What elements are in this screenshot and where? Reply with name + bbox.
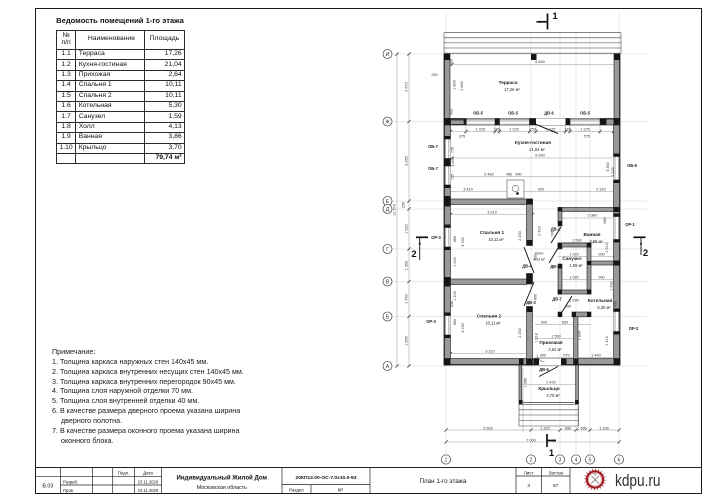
svg-text:kdpu.ru: kdpu.ru (615, 472, 661, 490)
svg-text:2: 2 (530, 457, 533, 463)
svg-text:5,30 м²: 5,30 м² (597, 305, 611, 310)
svg-text:3,70 м²: 3,70 м² (546, 393, 560, 398)
svg-text:1 430: 1 430 (610, 281, 614, 291)
svg-text:3 210: 3 210 (485, 350, 495, 354)
svg-text:2: 2 (643, 248, 648, 259)
svg-text:В: В (386, 279, 390, 285)
svg-text:2 670: 2 670 (405, 82, 409, 92)
svg-text:1 510: 1 510 (605, 243, 609, 253)
svg-text:КР: КР (338, 488, 344, 493)
svg-text:3 150: 3 150 (461, 237, 465, 247)
svg-text:5: 5 (589, 457, 592, 463)
svg-text:10,11 м²: 10,11 м² (488, 237, 504, 242)
svg-text:3 265: 3 265 (405, 156, 409, 166)
svg-text:2 480: 2 480 (484, 173, 494, 177)
svg-text:1 225: 1 225 (580, 128, 590, 132)
svg-text:Раздел: Раздел (289, 488, 304, 493)
svg-text:6: 6 (618, 457, 621, 463)
svg-text:3 350: 3 350 (606, 162, 610, 172)
svg-text:565: 565 (580, 426, 586, 430)
svg-text:Лист: Лист (524, 470, 534, 475)
svg-text:1,59 м²: 1,59 м² (569, 263, 583, 268)
svg-text:450: 450 (506, 173, 512, 177)
svg-text:И: И (386, 52, 390, 58)
svg-text:ДВ-2: ДВ-2 (551, 227, 561, 232)
svg-text:ДВ-7: ДВ-7 (552, 297, 562, 302)
svg-text:250: 250 (431, 73, 437, 77)
svg-text:Санузел: Санузел (562, 256, 581, 261)
svg-text:900: 900 (598, 276, 604, 280)
svg-text:3,86 м²: 3,86 м² (589, 239, 603, 244)
svg-text:3 210: 3 210 (487, 211, 497, 215)
svg-text:2 250: 2 250 (518, 328, 522, 338)
svg-text:6 640: 6 640 (535, 60, 545, 64)
svg-text:Индивидуальный Жилой Дом: Индивидуальный Жилой Дом (177, 475, 268, 482)
svg-text:Подл.: Подл. (118, 470, 130, 475)
svg-text:430: 430 (450, 301, 454, 307)
svg-text:3 000: 3 000 (451, 157, 455, 167)
svg-text:Московская область: Московская область (197, 485, 247, 491)
svg-text:400: 400 (450, 59, 454, 65)
svg-text:1 225: 1 225 (509, 128, 519, 132)
svg-text:ОР-1: ОР-1 (625, 222, 635, 227)
svg-text:1 165: 1 165 (599, 426, 609, 430)
svg-text:1 800: 1 800 (453, 80, 457, 90)
svg-text:900: 900 (541, 321, 547, 325)
svg-text:1 440: 1 440 (591, 354, 601, 358)
svg-text:ДВ-5: ДВ-5 (539, 367, 549, 372)
svg-text:2 420: 2 420 (546, 381, 556, 385)
svg-text:690: 690 (565, 426, 571, 430)
svg-text:Котельная: Котельная (588, 298, 613, 303)
svg-text:2 250: 2 250 (518, 231, 522, 241)
svg-text:Спальня 1: Спальня 1 (480, 230, 505, 235)
svg-text:3 500: 3 500 (483, 426, 493, 430)
svg-text:1: 1 (549, 448, 555, 459)
svg-text:500: 500 (515, 173, 521, 177)
svg-text:2 080: 2 080 (587, 214, 597, 218)
svg-text:Е: Е (386, 199, 390, 205)
svg-text:ОБ-5: ОБ-5 (580, 111, 590, 116)
svg-text:2 310: 2 310 (596, 188, 606, 192)
svg-text:Терраса: Терраса (499, 80, 518, 85)
svg-text:В.03: В.03 (42, 483, 53, 489)
svg-text:ДВ-1: ДВ-1 (550, 264, 560, 269)
svg-text:Д: Д (386, 207, 390, 213)
svg-text:800: 800 (534, 294, 538, 300)
svg-text:ОР-3: ОР-3 (426, 319, 436, 324)
svg-text:650: 650 (562, 321, 568, 325)
svg-text:3: 3 (527, 483, 530, 489)
svg-text:1 965: 1 965 (405, 336, 409, 346)
svg-text:1: 1 (445, 457, 448, 463)
svg-text:1 225: 1 225 (546, 128, 556, 132)
svg-text:430: 430 (614, 301, 618, 307)
svg-text:575: 575 (563, 354, 569, 358)
svg-text:700: 700 (551, 231, 555, 237)
svg-text:3 150: 3 150 (461, 323, 465, 333)
svg-text:1: 1 (552, 11, 558, 22)
svg-text:3: 3 (559, 457, 562, 463)
svg-text:165: 165 (494, 128, 500, 132)
svg-text:900: 900 (540, 354, 546, 358)
svg-text:7 000: 7 000 (526, 438, 536, 442)
svg-text:650: 650 (565, 305, 571, 309)
svg-text:2,64 м²: 2,64 м² (548, 347, 562, 352)
svg-text:ОР-3: ОР-3 (431, 235, 441, 240)
svg-text:ДВ-6: ДВ-6 (544, 111, 554, 116)
svg-text:10,11 м²: 10,11 м² (485, 321, 501, 326)
svg-text:1 390: 1 390 (524, 378, 528, 388)
svg-text:660: 660 (453, 319, 457, 325)
svg-text:Ванная: Ванная (584, 232, 601, 237)
svg-text:165: 165 (565, 128, 571, 132)
svg-text:1 620: 1 620 (405, 224, 409, 234)
svg-text:Спальня 2: Спальня 2 (477, 314, 502, 319)
svg-text:1 245: 1 245 (453, 291, 457, 301)
svg-text:4: 4 (575, 457, 578, 463)
svg-text:ОБ-6: ОБ-6 (627, 163, 637, 168)
svg-text:725: 725 (451, 174, 455, 180)
svg-text:Дата: Дата (143, 470, 153, 475)
svg-text:ДВ-4: ДВ-4 (522, 264, 532, 269)
svg-text:ОБ-5: ОБ-5 (508, 111, 518, 116)
svg-text:1 225: 1 225 (476, 128, 486, 132)
svg-text:255: 255 (530, 128, 536, 132)
svg-text:2 420: 2 420 (538, 226, 542, 236)
svg-text:20КП12.00-ОС-7.0х10.0-93: 20КП12.00-ОС-7.0х10.0-93 (296, 475, 357, 481)
svg-text:А: А (386, 364, 390, 370)
svg-text:Крыльцо: Крыльцо (538, 386, 559, 391)
svg-text:Прихожая: Прихожая (539, 340, 562, 345)
svg-text:ОР-2: ОР-2 (629, 326, 639, 331)
svg-text:23.11.2020: 23.11.2020 (138, 488, 159, 493)
svg-text:ОБ-7: ОБ-7 (428, 166, 438, 171)
svg-text:250: 250 (402, 202, 406, 208)
svg-text:Б: Б (386, 314, 390, 320)
svg-text:1 410: 1 410 (605, 336, 609, 346)
svg-text:21,04 м²: 21,04 м² (529, 147, 545, 152)
svg-text:1 020: 1 020 (569, 276, 579, 280)
svg-text:Листов: Листов (549, 470, 564, 475)
svg-text:725: 725 (451, 147, 455, 153)
svg-text:900: 900 (538, 188, 544, 192)
svg-text:1 450: 1 450 (405, 294, 409, 304)
svg-text:Ж: Ж (385, 119, 390, 125)
svg-text:17,26 м²: 17,26 м² (504, 87, 520, 92)
svg-text:1 225: 1 225 (611, 167, 615, 177)
svg-text:1 618: 1 618 (535, 333, 539, 343)
svg-text:1 320: 1 320 (540, 426, 550, 430)
svg-text:Разраб.: Разраб. (63, 480, 78, 485)
svg-text:2 600: 2 600 (460, 81, 464, 91)
svg-text:375: 375 (459, 135, 465, 139)
svg-text:ОБ-7: ОБ-7 (428, 144, 438, 149)
svg-text:3 410: 3 410 (463, 188, 473, 192)
svg-text:23.11.2020: 23.11.2020 (138, 480, 159, 485)
svg-text:400: 400 (450, 109, 454, 115)
svg-text:1 550: 1 550 (551, 335, 561, 339)
svg-text:12 670: 12 670 (393, 204, 397, 216)
svg-text:Г: Г (386, 247, 389, 253)
svg-text:1 590: 1 590 (569, 299, 579, 303)
svg-text:575: 575 (584, 135, 590, 139)
svg-text:Кухня-гостиная: Кухня-гостиная (515, 140, 551, 145)
svg-text:План 1-го этажа: План 1-го этажа (419, 478, 467, 485)
svg-text:1 020: 1 020 (569, 253, 579, 257)
svg-text:2: 2 (411, 249, 416, 260)
svg-text:57: 57 (553, 483, 559, 489)
svg-text:1 830: 1 830 (578, 331, 582, 341)
svg-text:1 590: 1 590 (572, 239, 582, 243)
svg-text:900: 900 (598, 253, 604, 257)
svg-text:Пров.: Пров. (63, 488, 74, 493)
svg-text:6 640: 6 640 (535, 154, 545, 158)
svg-text:650: 650 (603, 217, 607, 223)
svg-text:ОБ-5: ОБ-5 (473, 111, 483, 116)
svg-text:660: 660 (453, 236, 457, 242)
svg-text:1 350: 1 350 (405, 261, 409, 271)
svg-text:1 245: 1 245 (453, 257, 457, 267)
svg-text:800: 800 (534, 254, 538, 260)
